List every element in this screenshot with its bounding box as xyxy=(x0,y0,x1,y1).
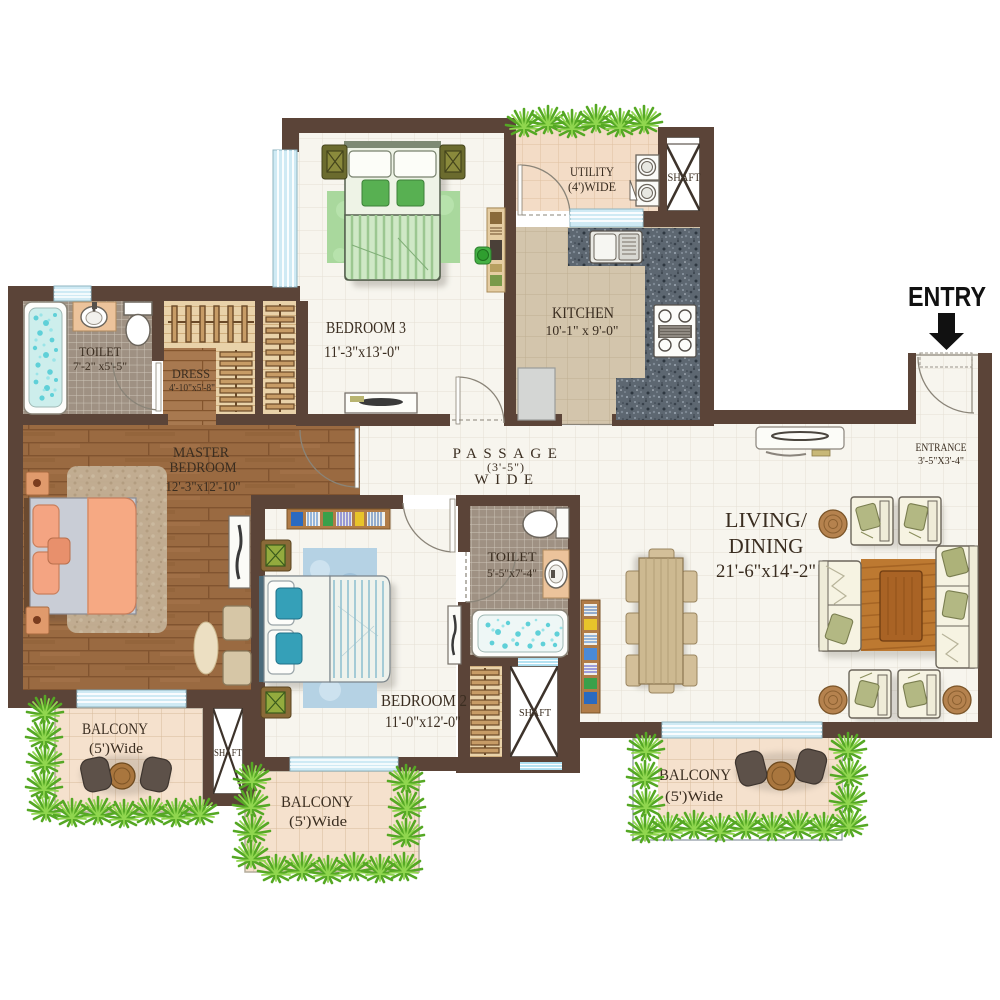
svg-text:ENTRY: ENTRY xyxy=(908,281,986,312)
svg-text:7'-2" x5'-5": 7'-2" x5'-5" xyxy=(73,361,127,373)
svg-text:WIDE: WIDE xyxy=(474,472,539,488)
svg-text:KITCHEN: KITCHEN xyxy=(552,305,614,322)
svg-text:21'-6"x14'-2": 21'-6"x14'-2" xyxy=(716,561,816,582)
svg-text:BALCONY: BALCONY xyxy=(281,794,353,811)
svg-text:ENTRANCE: ENTRANCE xyxy=(916,440,967,454)
svg-text:SHAFT: SHAFT xyxy=(214,748,242,759)
svg-text:5'-5"x7'-4": 5'-5"x7'-4" xyxy=(487,566,537,580)
svg-text:(5')Wide: (5')Wide xyxy=(289,814,347,830)
svg-text:(4')WIDE: (4')WIDE xyxy=(568,180,616,194)
svg-text:SHAFT: SHAFT xyxy=(668,172,701,184)
svg-text:DRESS: DRESS xyxy=(172,366,210,381)
svg-text:BALCONY: BALCONY xyxy=(659,767,731,784)
svg-text:BALCONY: BALCONY xyxy=(82,721,148,738)
svg-text:11'-3"x13'-0": 11'-3"x13'-0" xyxy=(324,344,400,361)
svg-text:4'-10"x5'-8": 4'-10"x5'-8" xyxy=(169,383,215,394)
svg-text:(5')Wide: (5')Wide xyxy=(89,741,143,757)
svg-text:TOILET: TOILET xyxy=(488,549,537,564)
svg-text:BEDROOM 3: BEDROOM 3 xyxy=(326,318,406,337)
svg-text:12'-3"x12'-10": 12'-3"x12'-10" xyxy=(166,480,241,495)
svg-text:SHAFT: SHAFT xyxy=(519,708,552,719)
svg-text:TOILET: TOILET xyxy=(79,344,121,359)
svg-text:BEDROOM: BEDROOM xyxy=(170,460,237,476)
svg-text:BEDROOM 2: BEDROOM 2 xyxy=(381,691,467,710)
svg-text:3'-5"X3'-4": 3'-5"X3'-4" xyxy=(918,455,964,467)
svg-text:LIVING/: LIVING/ xyxy=(725,508,807,532)
svg-text:DINING: DINING xyxy=(729,534,804,558)
svg-text:MASTER: MASTER xyxy=(173,445,229,461)
svg-text:10'-1" x 9'-0": 10'-1" x 9'-0" xyxy=(546,324,619,339)
svg-text:11'-0"x12'-0": 11'-0"x12'-0" xyxy=(385,714,461,731)
svg-text:UTILITY: UTILITY xyxy=(570,165,614,179)
svg-text:(5')Wide: (5')Wide xyxy=(665,789,723,805)
